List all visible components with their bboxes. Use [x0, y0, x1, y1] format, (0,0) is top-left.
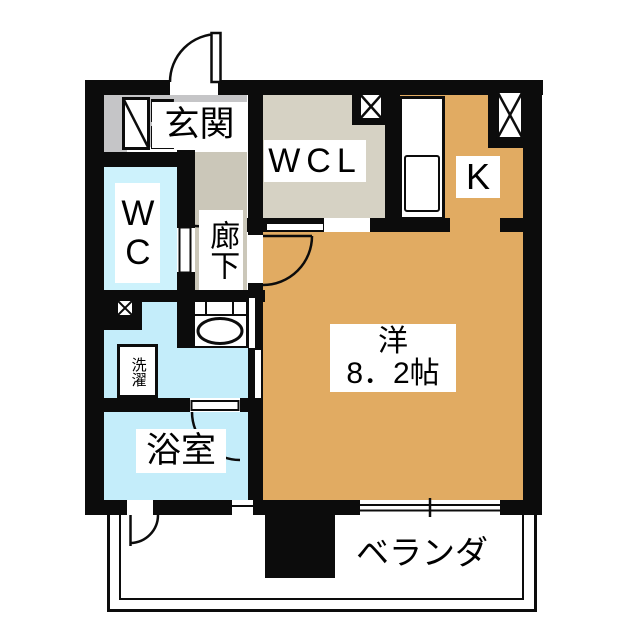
- main-room-size: 8．2帖: [346, 358, 439, 390]
- genkan-label: 玄関: [152, 102, 247, 148]
- main-room-label: 洋 8．2帖: [330, 324, 456, 392]
- pillar-x-wcl: [358, 92, 384, 121]
- wc-label: WC: [115, 183, 160, 283]
- floorplan: 玄関 WCL K WC 廊下 洗濯 浴室 洋 8．2帖 ベランダ: [0, 0, 640, 640]
- wall-main-left: [248, 80, 263, 500]
- sliding-door-wcl-panel: [267, 224, 323, 230]
- veranda-black-block: [265, 515, 335, 578]
- kitchen-label: K: [456, 156, 500, 198]
- wcl-label: WCL: [264, 140, 366, 182]
- sliding-door-washroom-panel2: [255, 350, 261, 398]
- window-main-opening: [360, 500, 500, 515]
- hallway-label: 廊下: [199, 210, 243, 290]
- vanity-sink-unit: [193, 300, 248, 348]
- entrance-door-arc: [170, 34, 218, 82]
- shoe-cabinet: [122, 97, 150, 150]
- wall-wc-hallway: [177, 150, 195, 300]
- sliding-door-washroom-panel1: [249, 298, 255, 348]
- window-small-opening: [232, 500, 253, 515]
- wc-door-opening: [177, 228, 195, 272]
- kitchen-sink: [404, 155, 440, 212]
- wall-top: [85, 80, 543, 95]
- veranda-door-opening: [127, 500, 153, 515]
- veranda-label: ベランダ: [350, 532, 494, 574]
- room-door-opening: [248, 235, 263, 283]
- laundry-label: 洗濯: [123, 352, 152, 392]
- bathroom-label: 浴室: [136, 429, 226, 473]
- entrance-door-leaf: [212, 33, 221, 82]
- entrance-opening: [170, 80, 218, 95]
- sliding-door-wcl-opening: [324, 218, 370, 232]
- wall-left: [85, 80, 104, 515]
- main-room-type: 洋: [378, 326, 408, 358]
- wall-kitchen-stub-left: [400, 218, 450, 232]
- bath-door-opening: [190, 398, 240, 412]
- wall-kitchen-stub-right: [500, 218, 523, 232]
- pillar-x-left: [116, 299, 134, 317]
- pillar-x-top-right: [496, 90, 524, 140]
